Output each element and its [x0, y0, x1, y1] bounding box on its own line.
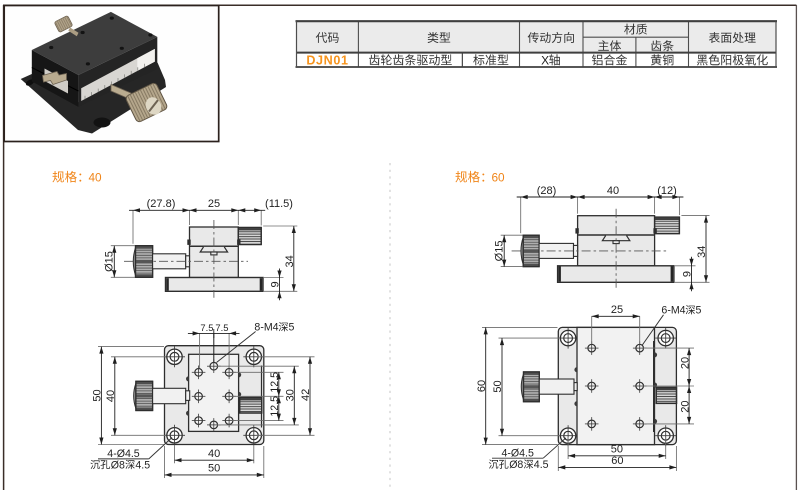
svg-text:9: 9 — [270, 281, 282, 287]
svg-text:30: 30 — [285, 389, 297, 401]
svg-text:40: 40 — [607, 185, 619, 197]
svg-text:7.5: 7.5 — [200, 322, 213, 333]
svg-text:12.5: 12.5 — [269, 396, 281, 417]
svg-text:4.5: 4.5 — [135, 459, 150, 471]
svg-text:4.5: 4.5 — [534, 459, 549, 471]
svg-text:12.5: 12.5 — [269, 372, 281, 393]
svg-text:5: 5 — [289, 322, 295, 334]
svg-text:40: 40 — [88, 171, 102, 185]
svg-text:25: 25 — [208, 198, 220, 210]
svg-text:34: 34 — [284, 255, 296, 267]
svg-text:9: 9 — [682, 271, 694, 277]
svg-text:4-Ø4.5: 4-Ø4.5 — [502, 448, 534, 460]
svg-text:X: X — [541, 53, 549, 67]
svg-text:Ø8: Ø8 — [509, 459, 523, 471]
svg-text:(11.5): (11.5) — [265, 198, 293, 210]
svg-text:6-M4: 6-M4 — [661, 305, 685, 317]
svg-text:Ø8: Ø8 — [111, 459, 125, 471]
svg-text:40: 40 — [105, 390, 117, 402]
svg-text:DJN01: DJN01 — [306, 53, 348, 67]
svg-text:(12): (12) — [657, 185, 677, 197]
svg-text:20: 20 — [679, 400, 691, 412]
svg-text:(28): (28) — [537, 185, 557, 197]
svg-text:40: 40 — [208, 448, 220, 460]
svg-text:34: 34 — [696, 246, 708, 258]
svg-text:5: 5 — [696, 305, 702, 317]
svg-text:50: 50 — [92, 389, 104, 401]
svg-text:8-M4: 8-M4 — [254, 322, 278, 334]
svg-text:50: 50 — [611, 443, 623, 455]
svg-text:42: 42 — [300, 389, 312, 401]
svg-text:(27.8): (27.8) — [147, 198, 176, 210]
svg-text:50: 50 — [208, 463, 220, 475]
svg-text:20: 20 — [679, 357, 691, 369]
svg-text:Ø15: Ø15 — [494, 241, 506, 262]
svg-text:50: 50 — [492, 380, 504, 392]
svg-text:60: 60 — [491, 171, 505, 185]
svg-text:Ø15: Ø15 — [104, 251, 116, 272]
svg-text:25: 25 — [611, 304, 623, 316]
svg-text:60: 60 — [611, 455, 623, 467]
svg-text:7.5: 7.5 — [215, 322, 228, 333]
svg-text:60: 60 — [476, 380, 488, 392]
